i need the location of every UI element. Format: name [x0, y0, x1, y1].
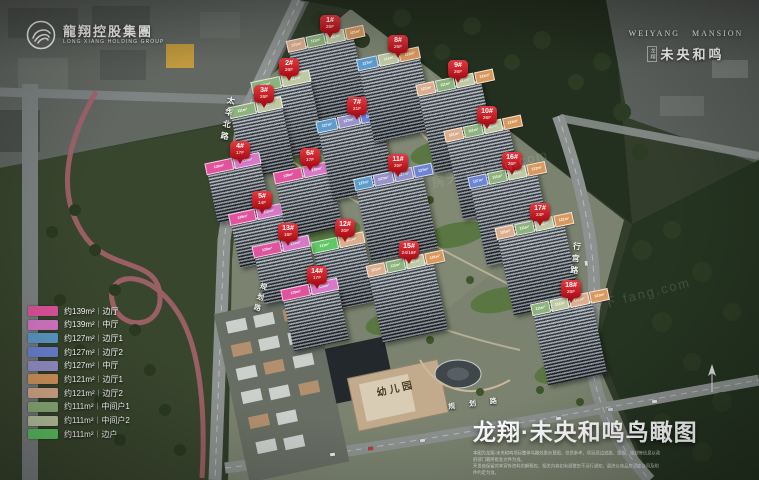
- roof-panel-area: 139m²: [237, 215, 248, 221]
- legend-type: 边厅: [103, 306, 119, 317]
- legend-swatch: [28, 306, 58, 316]
- legend-area: 约111m²: [64, 415, 94, 426]
- legend-divider: |: [98, 376, 100, 383]
- roof-panel-area: 111m²: [319, 243, 330, 249]
- legend-divider: |: [97, 417, 99, 424]
- marker-building-id: 17#: [530, 205, 550, 212]
- legend-swatch: [28, 429, 58, 439]
- compass-icon: [701, 362, 723, 394]
- legend-swatch: [28, 402, 58, 412]
- roof-panel-area: 121m²: [349, 30, 360, 36]
- marker-7: 7#21F: [347, 97, 367, 115]
- roof-panel-area: 111m²: [468, 128, 479, 134]
- roof-panel-area: 139m²: [261, 247, 272, 253]
- roof-panel-area: 111m²: [237, 108, 248, 114]
- developer-logo: 龍翔控股集團 LONG XIANG HOLDING GROUP: [26, 20, 164, 50]
- roof-panel-area: 127m²: [418, 168, 429, 174]
- building-15: 121m²111m²111m²121m²: [368, 261, 447, 343]
- legend-row: 约121m²|边厅1: [28, 374, 130, 384]
- building-14: 139m²139m²: [283, 287, 349, 351]
- legend-area: 约127m²: [64, 347, 95, 358]
- marker-floors: 17F: [302, 158, 318, 163]
- legend-label: 约127m²|边厅1: [64, 333, 123, 344]
- legend-swatch: [28, 388, 58, 398]
- legend-type: 边户: [101, 429, 117, 440]
- legend-area: 约139m²: [64, 319, 95, 330]
- legend-label: 约111m²|中间户1: [64, 401, 130, 412]
- project-logo: WEIYANG MANSION 龙翔 未央和鸣: [631, 16, 741, 63]
- roof-panel-area: 121m²: [346, 237, 357, 243]
- marker-building-id: 13#: [278, 225, 298, 232]
- legend-swatch: [28, 374, 58, 384]
- legend-divider: |: [98, 390, 100, 397]
- marker-13: 13#16F: [278, 223, 298, 241]
- legend-label: 约111m²|中间户2: [64, 415, 130, 426]
- roof-panel-area: 121m²: [500, 229, 511, 235]
- marker-floors: 26F: [450, 70, 466, 75]
- roof-panel-area: 111m²: [440, 82, 451, 88]
- title-block: 龙翔·未央和鸣鸟瞰图 本图为龙翔·未央和鸣项目整体鸟瞰效果示意图，仅供参考，项目…: [473, 413, 733, 480]
- car: [585, 261, 588, 266]
- marker-floors: 20F: [337, 229, 353, 234]
- marker-building-id: 14#: [307, 268, 327, 275]
- roof-panel-area: 111m²: [311, 38, 322, 44]
- marker-building-id: 11#: [388, 156, 408, 163]
- legend-rows: 约139m²|边厅约139m²|中厅约127m²|边厅1约127m²|边厅2约1…: [28, 306, 130, 439]
- birdseye-render: 121m²111m²111m²121m²111m²111m²111m²111m²…: [0, 0, 759, 480]
- legend-divider: |: [98, 321, 100, 328]
- marker-floors: 24/16F: [401, 251, 417, 256]
- roof-panel-area: 127m²: [358, 180, 369, 186]
- roof-panel-area: 139m²: [214, 164, 225, 170]
- legend-label: 约121m²|边厅2: [64, 388, 123, 399]
- marker-building-id: 6#: [300, 150, 320, 157]
- legend-area: 约111m²: [64, 429, 94, 440]
- roof-panel-area: 111m²: [554, 301, 565, 307]
- marker-8: 8#26F: [388, 35, 408, 53]
- legend-row: 约121m²|边厅2: [28, 388, 130, 398]
- marker-floors: 26F: [322, 25, 338, 30]
- legend-divider: |: [98, 335, 100, 342]
- project-name-en-left: WEIYANG: [629, 29, 680, 42]
- developer-name-cn: 龍翔控股集團: [63, 25, 164, 39]
- legend-swatch: [28, 333, 58, 343]
- roof-panel-area: 111m²: [460, 78, 471, 84]
- marker-floors: 26F: [256, 95, 272, 100]
- marker-3: 3#26F: [254, 85, 274, 103]
- roof-panel-area: 121m²: [371, 267, 382, 273]
- roof-panel-area: 121m²: [449, 132, 460, 138]
- page-title: 龙翔·未央和鸣鸟瞰图: [473, 413, 733, 447]
- legend-area: 约111m²: [64, 401, 94, 412]
- project-name-cn-prefix: 龙翔: [647, 46, 657, 62]
- marker-floors: 26F: [563, 290, 579, 295]
- legend-row: 约127m²|边厅2: [28, 347, 130, 357]
- roof-panel-area: 121m²: [291, 42, 302, 48]
- marker-12: 12#20F: [335, 219, 355, 237]
- legend-type: 边厅1: [103, 374, 123, 385]
- legend-label: 约121m²|边厅1: [64, 374, 123, 385]
- legend-row: 约111m²|中间户2: [28, 416, 130, 426]
- disclaimer-line1: 本图为龙翔·未央和鸣项目整体鸟瞰效果示意图，仅供参考，项目周边道路、景观、规划等…: [473, 451, 660, 464]
- marker-floors: 26F: [390, 45, 406, 50]
- marker-building-id: 12#: [335, 221, 355, 228]
- legend-row: 约127m²|中厅: [28, 361, 130, 371]
- roof-panel-area: 111m²: [391, 263, 402, 269]
- marker-14: 14#17F: [307, 266, 327, 284]
- legend-divider: |: [98, 308, 100, 315]
- project-name-cn: 未央和鸣: [660, 44, 724, 63]
- legend-type: 边厅1: [103, 333, 123, 344]
- legend-swatch: [28, 361, 58, 371]
- marker-4: 4#17F: [230, 141, 250, 159]
- roof-panel-area: 121m²: [558, 217, 569, 223]
- legend-type: 中间户2: [101, 415, 129, 426]
- marker-building-id: 10#: [477, 108, 497, 115]
- roof-panel-area: 121m²: [507, 120, 518, 126]
- marker-floors: 17F: [232, 151, 248, 156]
- marker-floors: 14F: [254, 201, 270, 206]
- marker-building-id: 8#: [388, 37, 408, 44]
- longxiang-swirl-icon: [26, 20, 56, 50]
- roof-panel-area: 121m²: [404, 52, 415, 58]
- marker-building-id: 1#: [320, 17, 340, 24]
- legend-row: 约139m²|边厅: [28, 306, 130, 316]
- roof-panel-area: 139m²: [311, 167, 322, 173]
- roof-panel-area: 139m²: [241, 158, 252, 164]
- marker-building-id: 7#: [347, 99, 367, 106]
- roof-panel-area: 139m²: [264, 209, 275, 215]
- roof-panel-area: 127m²: [322, 123, 333, 129]
- legend: 约139m²|边厅约139m²|中厅约127m²|边厅1约127m²|边厅2约1…: [28, 306, 130, 443]
- roof-panel-area: 121m²: [531, 166, 542, 172]
- marker-11: 11#25F: [388, 154, 408, 172]
- marker-10: 10#26F: [477, 106, 497, 124]
- marker-building-id: 2#: [279, 60, 299, 67]
- roof-panel-area: 127m²: [378, 176, 389, 182]
- marker-floors: 17F: [309, 276, 325, 281]
- legend-type: 中厅: [103, 360, 119, 371]
- legend-type: 中厅: [103, 319, 119, 330]
- legend-row: 约139m²|中厅: [28, 320, 130, 330]
- roof-panel-area: 121m²: [429, 255, 440, 261]
- marker-2: 2#26F: [279, 58, 299, 76]
- legend-area: 约139m²: [64, 306, 95, 317]
- marker-9: 9#26F: [448, 60, 468, 78]
- legend-row: 约111m²|中间户1: [28, 402, 130, 412]
- marker-floors: 26F: [479, 116, 495, 121]
- legend-area: 约121m²: [64, 388, 95, 399]
- roof-panel-area: 127m²: [362, 61, 373, 67]
- marker-building-id: 5#: [252, 193, 272, 200]
- legend-label: 约111m²|边户: [64, 429, 117, 440]
- roof-panel-area: 139m²: [319, 284, 330, 290]
- roof-panel-area: 111m²: [520, 225, 531, 231]
- marker-floors: 16F: [280, 233, 296, 238]
- marker-18: 18#26F: [561, 280, 581, 298]
- disclaimer-line2: 开发商保留对本宣传资料的解释权，相关内容如有调整恕不另行通知，最终以商品房买卖合…: [473, 464, 660, 477]
- marker-floors: 21F: [349, 107, 365, 112]
- marker-15: 15#24/16F: [399, 241, 419, 259]
- legend-divider: |: [97, 403, 99, 410]
- legend-area: 约121m²: [64, 374, 95, 385]
- marker-floors: 26F: [281, 68, 297, 73]
- legend-label: 约127m²|中厅: [64, 360, 119, 371]
- project-name-en-right: MANSION: [692, 29, 743, 42]
- roof-panel-area: 139m²: [282, 173, 293, 179]
- legend-type: 边厅2: [103, 388, 123, 399]
- legend-divider: |: [97, 431, 99, 438]
- roof-panel-area: 139m²: [290, 290, 301, 296]
- legend-type: 中间户1: [101, 401, 129, 412]
- legend-swatch: [28, 347, 58, 357]
- marker-building-id: 4#: [230, 143, 250, 150]
- marker-floors: 24F: [532, 213, 548, 218]
- legend-label: 约139m²|边厅: [64, 306, 119, 317]
- roof-panel-area: 111m²: [291, 76, 302, 82]
- legend-area: 约127m²: [64, 333, 95, 344]
- roof-panel-area: 139m²: [290, 241, 301, 247]
- legend-row: 约127m²|边厅1: [28, 333, 130, 343]
- legend-label: 约127m²|边厅2: [64, 347, 123, 358]
- legend-divider: |: [98, 349, 100, 356]
- roof-panel-area: 111m²: [535, 306, 546, 312]
- roof-panel-area: 121m²: [479, 74, 490, 80]
- marker-floors: 25F: [390, 164, 406, 169]
- marker-5: 5#14F: [252, 191, 272, 209]
- legend-label: 约139m²|中厅: [64, 319, 119, 330]
- legend-swatch: [28, 416, 58, 426]
- marker-building-id: 3#: [254, 87, 274, 94]
- roof-panel-area: 121m²: [421, 86, 432, 92]
- marker-building-id: 18#: [561, 282, 581, 289]
- legend-divider: |: [98, 362, 100, 369]
- legend-swatch: [28, 320, 58, 330]
- marker-17: 17#24F: [530, 203, 550, 221]
- marker-6: 6#17F: [300, 148, 320, 166]
- legend-row: 约111m²|边户: [28, 429, 130, 439]
- marker-building-id: 9#: [448, 62, 468, 69]
- developer-name-en: LONG XIANG HOLDING GROUP: [63, 39, 164, 45]
- marker-building-id: 15#: [399, 243, 419, 250]
- legend-area: 约127m²: [64, 360, 95, 371]
- legend-type: 边厅2: [103, 347, 123, 358]
- marker-1: 1#26F: [320, 15, 340, 33]
- roof-panel-area: 111m²: [383, 56, 394, 62]
